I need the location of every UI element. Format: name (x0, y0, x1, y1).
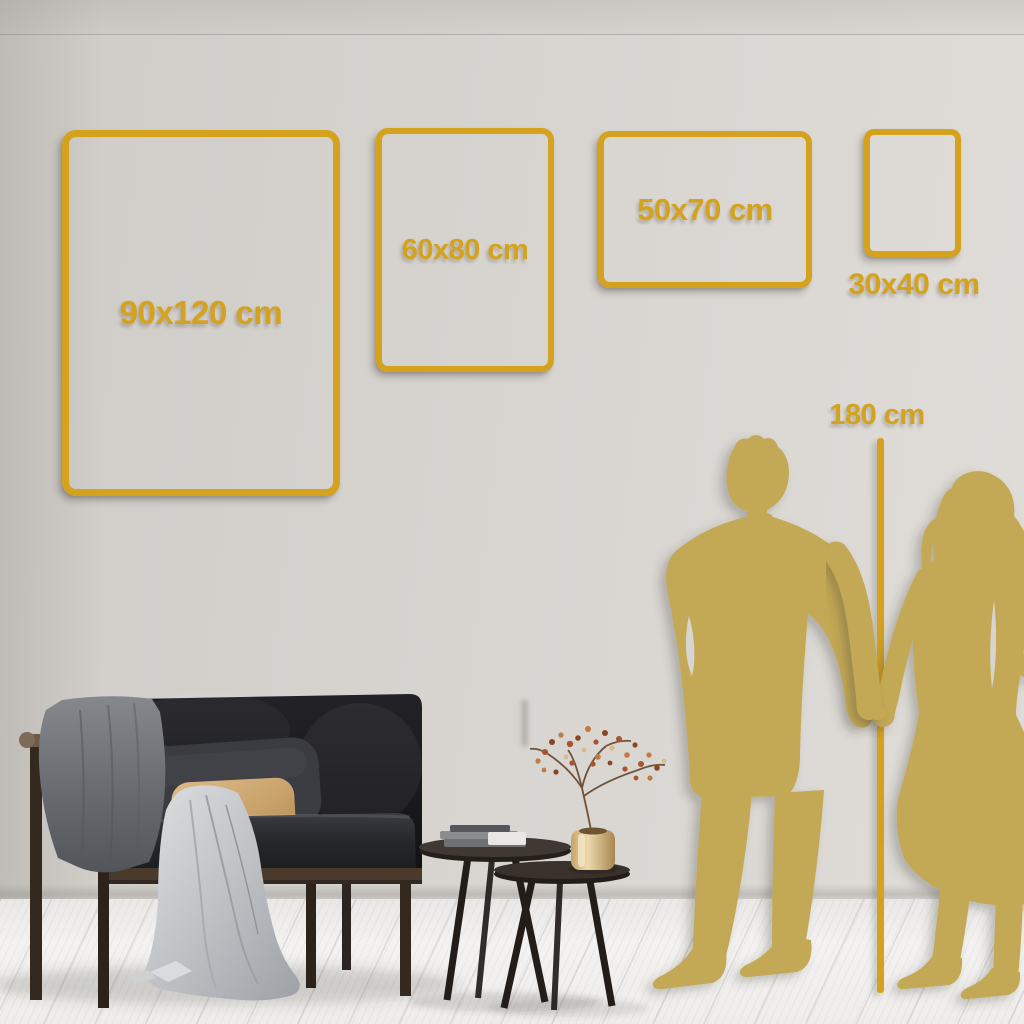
woman-silhouette (873, 471, 1024, 999)
man-leg (692, 790, 752, 962)
man-head (726, 435, 789, 512)
woman-foot (897, 954, 962, 989)
wall-art-size-guide: 90x120 cm 60x80 cm 50x70 cm 30x40 cm 180… (0, 0, 1024, 1024)
couple-silhouette (0, 0, 1024, 1024)
woman-foot (961, 968, 1020, 999)
man-leg (772, 790, 824, 953)
woman-head (948, 482, 996, 538)
man-silhouette (653, 435, 873, 989)
man-foot (740, 936, 812, 977)
man-foot (653, 946, 727, 989)
woman-leg (993, 894, 1023, 978)
joined-hands (868, 706, 886, 720)
